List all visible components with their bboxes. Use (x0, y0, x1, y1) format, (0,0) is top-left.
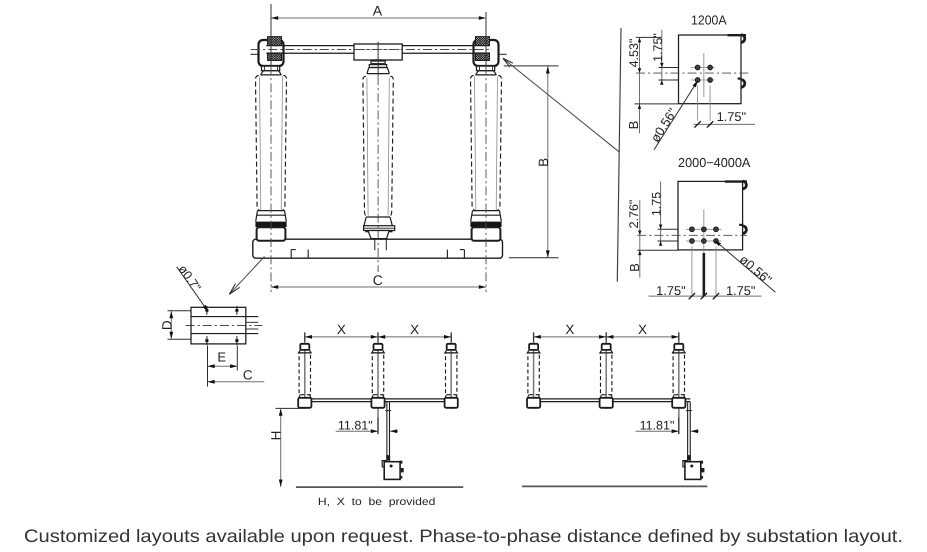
svg-text:1.75": 1.75" (656, 283, 685, 298)
svg-text:C: C (243, 367, 253, 382)
svg-text:C: C (373, 272, 383, 288)
svg-text:X: X (337, 322, 346, 337)
svg-text:4.53": 4.53" (627, 39, 641, 68)
svg-text:Customized layouts available u: Customized layouts available upon reques… (24, 526, 903, 546)
svg-text:D: D (159, 320, 174, 330)
svg-text:H, X to be provided: H, X to be provided (318, 496, 436, 508)
svg-text:A: A (373, 3, 383, 19)
svg-text:B: B (626, 121, 641, 130)
svg-text:E: E (217, 350, 226, 365)
svg-text:2.76": 2.76" (627, 200, 641, 229)
svg-text:H: H (268, 431, 283, 441)
svg-text:B: B (627, 263, 642, 272)
svg-text:X: X (638, 322, 647, 337)
svg-text:2000−4000A: 2000−4000A (678, 155, 751, 170)
svg-text:X: X (565, 322, 574, 337)
svg-text:1.75": 1.75" (717, 109, 746, 124)
svg-text:B: B (536, 158, 551, 167)
svg-text:11.81": 11.81" (640, 418, 675, 432)
svg-text:1200A: 1200A (691, 12, 727, 27)
svg-text:X: X (410, 322, 419, 337)
svg-text:1.75": 1.75" (651, 33, 665, 62)
svg-text:11.81": 11.81" (338, 418, 373, 432)
svg-text:1.75": 1.75" (726, 283, 755, 298)
svg-text:1.75: 1.75 (650, 192, 664, 216)
